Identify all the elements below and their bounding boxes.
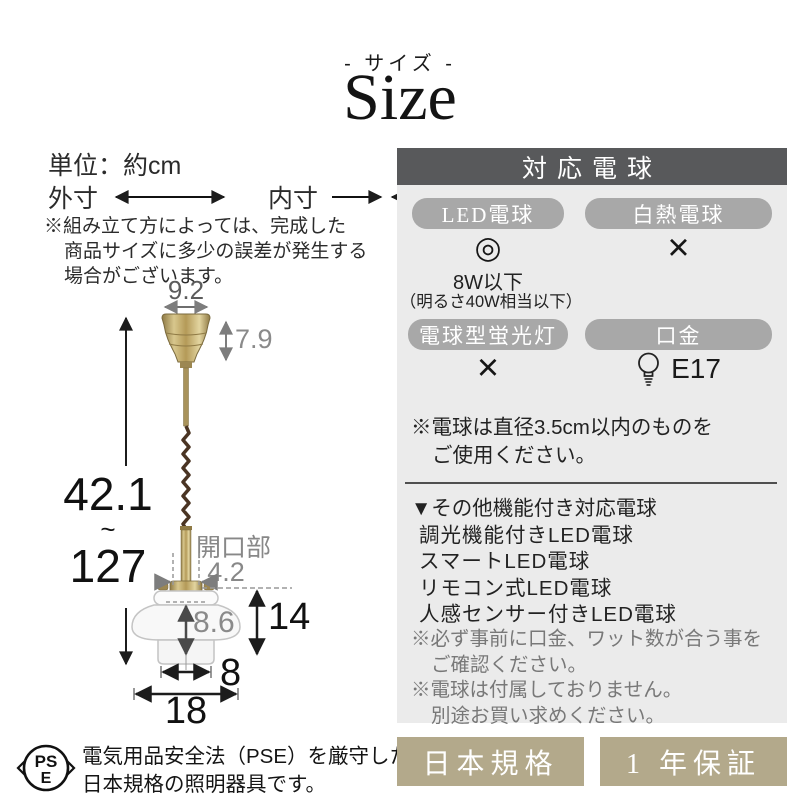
cap-connector xyxy=(180,362,192,368)
page-title: Size xyxy=(0,60,800,136)
dim-cap-width: 9.2 xyxy=(168,276,204,305)
led-ok-double-circle-icon: ◎ xyxy=(412,230,564,266)
pse-mark-icon: PS E xyxy=(16,740,78,796)
bulb-panel: LED電球 白熱電球 ◎ 8W以下 （明るさ40W相当以下） × 電球型蛍光灯 … xyxy=(397,185,787,723)
led-wattage-note: （明るさ40W相当以下） xyxy=(397,288,585,312)
dim-shade-inner-height: 8.6 xyxy=(193,606,235,639)
outer-dim-arrow-icon xyxy=(110,189,230,205)
caution-note-line: ※必ず事前に口金、ワット数が合う事を xyxy=(411,627,762,653)
dim-height-max: 127 xyxy=(70,540,147,592)
other-compatible-bulbs: ▼その他機能付き対応電球 調光機能付きLED電球 スマートLED電球 リモコン式… xyxy=(411,496,677,629)
caution-note-line: ご確認ください。 xyxy=(431,653,762,679)
inner-dim-label: 内寸 xyxy=(268,179,318,215)
japan-standard-badge: 日本規格 xyxy=(397,737,584,786)
one-year-warranty-badge: 1 年保証 xyxy=(600,737,787,786)
other-bulb-item: リモコン式LED電球 xyxy=(419,576,677,603)
dim-shade-outer-width: 18 xyxy=(165,690,207,726)
caution-note-line: ※電球は付属しておりません。 xyxy=(411,678,762,704)
socket-base-value: E17 xyxy=(585,351,772,387)
panel-divider xyxy=(405,482,777,484)
pse-description-line: 電気用品安全法（PSE）を厳守した xyxy=(82,743,410,771)
cfl-cross-icon: × xyxy=(408,347,568,390)
pse-mark-bottom-text: E xyxy=(41,770,52,787)
dim-shade-height: 14 xyxy=(268,596,310,638)
dim-shade-inner-width: 8 xyxy=(220,652,241,694)
twisted-cord xyxy=(183,426,189,529)
outer-dim-label: 外寸 xyxy=(48,179,98,215)
thumb-screw-left xyxy=(158,583,168,590)
pse-mark-top-text: PS xyxy=(35,752,58,771)
unit-label: 単位：約cm xyxy=(48,146,181,182)
caution-note-line: 別途お買い求めください。 xyxy=(431,704,762,730)
other-bulb-item: 調光機能付きLED電球 xyxy=(419,523,677,550)
other-compatible-title: ▼その他機能付き対応電球 xyxy=(411,496,677,523)
ceiling-cap xyxy=(162,314,210,362)
lamp-dimension-diagram: 42.1 ~ 127 9.2 7.9 開口部 4.2 xyxy=(20,276,390,726)
size-spec-sheet: - サイズ - Size 単位：約cm 外寸 内寸 ※組み立て方によっては、完成… xyxy=(0,0,800,800)
incandescent-cross-icon: × xyxy=(585,227,772,270)
led-bulb-label: LED電球 xyxy=(412,198,564,229)
socket-stem xyxy=(181,530,191,581)
assembly-note-line: 商品サイズに多少の誤差が発生する xyxy=(64,239,367,264)
dimension-legend: 外寸 内寸 xyxy=(48,179,445,215)
dim-cap-height: 7.9 xyxy=(235,324,273,354)
shade-neck xyxy=(154,591,218,605)
bulb-panel-title: 対応電球 xyxy=(397,148,787,185)
pse-description-line: 日本規格の照明器具です。 xyxy=(82,771,410,799)
caution-notes: ※必ず事前に口金、ワット数が合う事を ご確認ください。 ※電球は付属しておりませ… xyxy=(411,627,762,729)
dim-height-min: 42.1 xyxy=(63,468,153,520)
assembly-note-line: ※組み立て方によっては、完成した xyxy=(44,214,367,239)
bulb-diameter-note: ※電球は直径3.5cm以内のものを ご使用ください。 xyxy=(411,414,713,470)
other-bulb-item: 人感センサー付きLED電球 xyxy=(419,602,677,629)
socket-base-label: 口金 xyxy=(585,319,772,350)
stem-top xyxy=(180,526,192,530)
hanging-rod xyxy=(184,368,189,426)
cfl-bulb-label: 電球型蛍光灯 xyxy=(408,319,568,350)
other-bulb-item: スマートLED電球 xyxy=(419,549,677,576)
incandescent-bulb-label: 白熱電球 xyxy=(585,198,772,229)
bulb-icon xyxy=(636,351,661,387)
socket-size: E17 xyxy=(671,353,721,385)
pse-description: 電気用品安全法（PSE）を厳守した 日本規格の照明器具です。 xyxy=(82,743,410,799)
